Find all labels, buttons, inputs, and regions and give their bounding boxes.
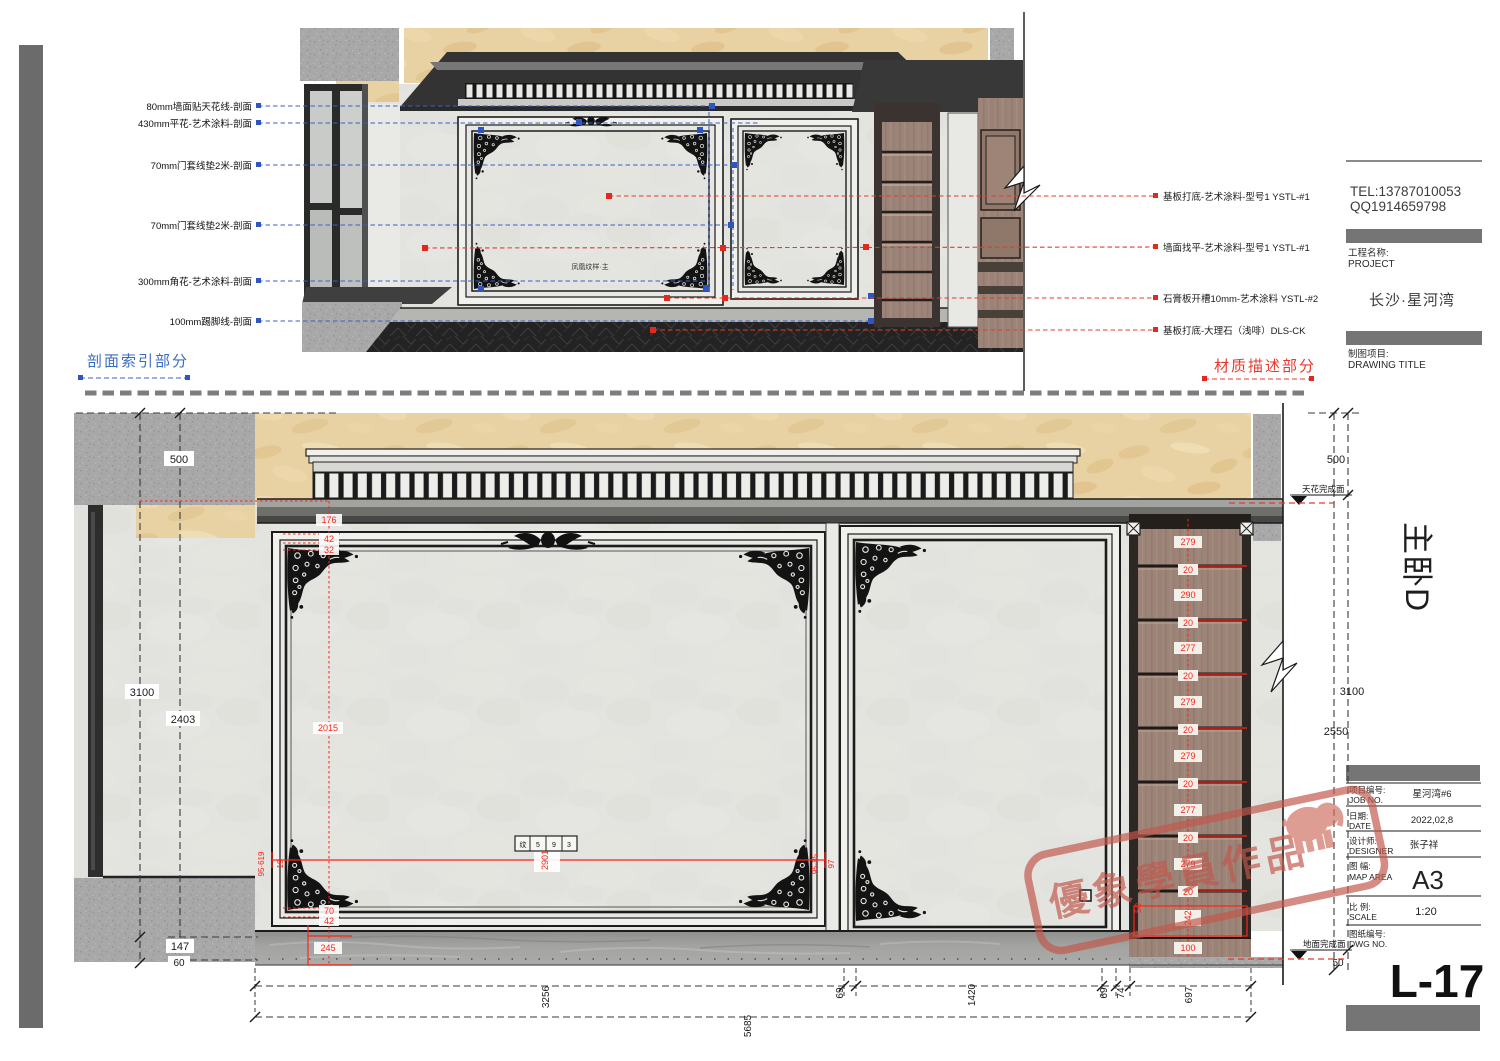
svg-text:TEL:13787010053: TEL:13787010053 xyxy=(1350,184,1461,199)
svg-text:20: 20 xyxy=(1183,565,1193,575)
svg-text:凤凰纹样·主: 凤凰纹样·主 xyxy=(571,262,608,271)
svg-text:60: 60 xyxy=(173,958,185,969)
svg-text:天花完成面: 天花完成面 xyxy=(1302,484,1345,494)
svg-text:DWG NO.: DWG NO. xyxy=(1349,939,1387,949)
svg-text:100mm踢脚线-剖面: 100mm踢脚线-剖面 xyxy=(170,316,252,328)
svg-text:245: 245 xyxy=(320,943,335,953)
svg-text:277: 277 xyxy=(1180,805,1195,815)
svg-text:制图项目:: 制图项目: xyxy=(1348,348,1389,360)
svg-text:20: 20 xyxy=(1183,725,1193,735)
svg-text:80mm墙面贴天花线-剖面: 80mm墙面贴天花线-剖面 xyxy=(146,101,252,113)
svg-text:42: 42 xyxy=(324,534,334,544)
svg-text:50: 50 xyxy=(1332,958,1344,969)
svg-text:PROJECT: PROJECT xyxy=(1348,259,1395,270)
svg-text:95·85: 95·85 xyxy=(811,853,820,874)
svg-text:279: 279 xyxy=(1180,751,1195,761)
svg-text:69: 69 xyxy=(835,987,846,999)
svg-text:277: 277 xyxy=(1180,643,1195,653)
svg-text:290: 290 xyxy=(1180,590,1195,600)
svg-text:74: 74 xyxy=(1116,987,1127,999)
svg-text:3100: 3100 xyxy=(130,687,154,699)
svg-text:2022,02,8: 2022,02,8 xyxy=(1411,815,1453,826)
svg-text:L-17: L-17 xyxy=(1390,955,1485,1007)
svg-text:工程名称:: 工程名称: xyxy=(1348,247,1389,259)
svg-text:42: 42 xyxy=(324,916,334,926)
svg-text:95·619: 95·619 xyxy=(257,851,266,876)
svg-text:19: 19 xyxy=(276,859,285,868)
svg-text:1420: 1420 xyxy=(967,983,978,1006)
svg-text:材质描述部分: 材质描述部分 xyxy=(1214,358,1316,375)
svg-text:20: 20 xyxy=(1183,779,1193,789)
svg-text:DATE: DATE xyxy=(1349,821,1371,831)
svg-text:70: 70 xyxy=(324,906,334,916)
svg-text:基板打底-艺术涂料-型号1 YSTL-#1: 基板打底-艺术涂料-型号1 YSTL-#1 xyxy=(1163,191,1310,203)
svg-text:2550: 2550 xyxy=(1324,726,1348,738)
svg-text:3: 3 xyxy=(567,842,571,849)
svg-text:星河湾#6: 星河湾#6 xyxy=(1412,788,1451,800)
svg-text:基板打底-大理石（浅啡）DLS-CK: 基板打底-大理石（浅啡）DLS-CK xyxy=(1163,325,1306,337)
svg-text:2015: 2015 xyxy=(318,723,338,733)
svg-text:300mm角花-艺术涂料-剖面: 300mm角花-艺术涂料-剖面 xyxy=(138,276,252,288)
svg-text:9: 9 xyxy=(552,842,556,849)
svg-text:SCALE: SCALE xyxy=(1349,912,1377,922)
svg-text:5: 5 xyxy=(536,842,540,849)
svg-text:DESIGNER: DESIGNER xyxy=(1349,846,1393,856)
svg-text:176: 176 xyxy=(321,515,336,525)
svg-text:A3: A3 xyxy=(1412,865,1444,895)
svg-text:地面完成面: 地面完成面 xyxy=(1303,939,1346,949)
svg-text:比 例:: 比 例: xyxy=(1349,902,1371,912)
svg-text:3100: 3100 xyxy=(1340,686,1364,698)
svg-text:QQ1914659798: QQ1914659798 xyxy=(1350,199,1446,214)
svg-text:张子祥: 张子祥 xyxy=(1410,839,1439,851)
svg-text:100: 100 xyxy=(1180,943,1195,953)
svg-text:20: 20 xyxy=(1183,833,1193,843)
svg-text:日期:: 日期: xyxy=(1349,811,1368,821)
svg-text:剖面索引部分: 剖面索引部分 xyxy=(87,353,189,370)
svg-text:设计师:: 设计师: xyxy=(1349,836,1377,846)
svg-text:69: 69 xyxy=(1099,987,1110,999)
svg-text:主卧D: 主卧D xyxy=(1399,522,1435,612)
svg-text:279: 279 xyxy=(1180,697,1195,707)
svg-text:石膏板开槽10mm-艺术涂料 YSTL-#2: 石膏板开槽10mm-艺术涂料 YSTL-#2 xyxy=(1163,293,1318,305)
svg-text:279: 279 xyxy=(1180,537,1195,547)
svg-text:长沙·星河湾: 长沙·星河湾 xyxy=(1369,292,1455,309)
svg-text:697: 697 xyxy=(1184,986,1195,1003)
svg-text:97: 97 xyxy=(827,859,836,868)
svg-text:纹: 纹 xyxy=(520,840,527,849)
svg-text:500: 500 xyxy=(1327,454,1345,466)
svg-text:图纸编号:: 图纸编号: xyxy=(1349,929,1385,939)
svg-text:2901: 2901 xyxy=(540,850,550,870)
svg-text:DRAWING TITLE: DRAWING TITLE xyxy=(1348,360,1426,371)
svg-text:2403: 2403 xyxy=(171,714,195,726)
svg-text:70mm门套线垫2米-剖面: 70mm门套线垫2米-剖面 xyxy=(151,220,252,232)
svg-text:147: 147 xyxy=(171,941,189,953)
svg-text:1:20: 1:20 xyxy=(1415,906,1436,918)
svg-text:20: 20 xyxy=(1183,618,1193,628)
svg-text:32: 32 xyxy=(324,545,334,555)
svg-text:70mm门套线垫2米-剖面: 70mm门套线垫2米-剖面 xyxy=(151,160,252,172)
svg-text:墙面找平-艺术涂料-型号1 YSTL-#1: 墙面找平-艺术涂料-型号1 YSTL-#1 xyxy=(1163,242,1310,254)
svg-text:20: 20 xyxy=(1183,671,1193,681)
svg-text:500: 500 xyxy=(170,454,188,466)
svg-text:3256: 3256 xyxy=(541,985,552,1008)
svg-text:5685: 5685 xyxy=(743,1014,754,1037)
svg-text:图 幅:: 图 幅: xyxy=(1349,861,1371,871)
svg-text:430mm平花-艺术涂料-剖面: 430mm平花-艺术涂料-剖面 xyxy=(138,118,252,130)
